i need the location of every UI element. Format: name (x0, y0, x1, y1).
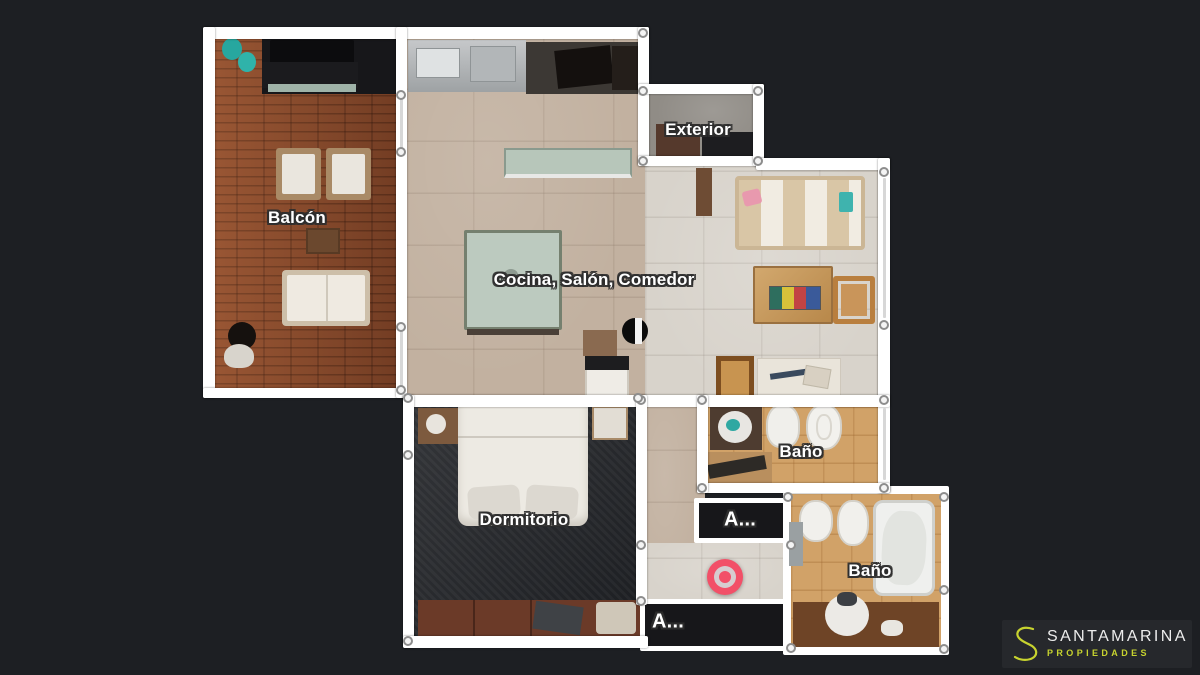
ceiling-lamp (622, 318, 648, 344)
bathroom2-toilet (799, 500, 833, 542)
room-label-dormitorio[interactable]: Dormitorio (480, 510, 569, 530)
wall-node (396, 147, 406, 157)
wall-bathroom1-left (697, 395, 708, 493)
wall-node (403, 636, 413, 646)
glass-door-line (400, 330, 403, 388)
room-label-bano-1[interactable]: Baño (779, 442, 822, 462)
wall-exterior-right (753, 84, 764, 166)
wall-bedroom-right (636, 395, 647, 605)
wall-node (396, 90, 406, 100)
bathroom2-bidet (837, 500, 869, 546)
teal-pillow (839, 192, 853, 212)
wall-node (753, 156, 763, 166)
wall-node (403, 450, 413, 460)
bathroom1-vanity (710, 406, 762, 450)
wall-balcony-bottom (203, 388, 405, 398)
kitchen-counter (408, 40, 526, 92)
wall-node (638, 156, 648, 166)
nightstand-right (592, 406, 628, 440)
glass-door-line (400, 92, 403, 150)
nightstand-left (418, 408, 458, 444)
bed (458, 398, 588, 526)
window-line (883, 408, 886, 480)
room-label-exterior[interactable]: Exterior (665, 120, 731, 140)
balcony-sofa (282, 270, 370, 326)
wall-node (636, 540, 646, 550)
magazines (769, 286, 821, 310)
coffee-table (753, 266, 833, 324)
wall-bathroom1-bottom (697, 483, 890, 493)
bedroom-dresser (418, 600, 640, 638)
wall-node (396, 322, 406, 332)
agency-logo: SANTAMARINA PROPIEDADES (1002, 620, 1192, 668)
wall-node (939, 585, 949, 595)
room-label-cocina[interactable]: Cocina, Salón, Comedor (494, 270, 695, 290)
wall-balcony-left (203, 27, 215, 398)
bathtub (873, 500, 935, 596)
folded-linen (596, 602, 636, 634)
wall-node (753, 86, 763, 96)
wall-node (783, 492, 793, 502)
dining-chair (833, 276, 875, 324)
wall-node (786, 643, 796, 653)
wall-node (403, 393, 413, 403)
kitchen-appliances (526, 42, 642, 94)
current-position-marker[interactable] (707, 559, 743, 595)
logo-name: SANTAMARINA (1047, 629, 1188, 646)
room-label-armario-2[interactable]: A... (652, 611, 684, 634)
wall-bedroom-bottom (403, 636, 648, 648)
balcony-side-table (306, 228, 340, 254)
marker-dot (719, 571, 731, 583)
plant-pot-teal-2 (238, 52, 256, 72)
logo-tagline: PROPIEDADES (1047, 649, 1188, 658)
window-line (883, 178, 886, 318)
console-table (585, 356, 629, 398)
salon-sofa (735, 176, 865, 250)
wall-salon-top (756, 158, 890, 170)
salon-cabinet (696, 168, 712, 216)
pink-pillow (741, 188, 762, 207)
room-label-armario-1[interactable]: A... (724, 509, 756, 532)
wall-node (633, 393, 643, 403)
wall-bedroom-left (403, 395, 414, 648)
wall-node (638, 86, 648, 96)
wall-node (638, 28, 648, 38)
wall-kitchen-right (638, 27, 649, 166)
wall-node (636, 596, 646, 606)
logo-s-icon (1012, 625, 1038, 663)
wood-chest (583, 330, 617, 356)
wall-node (786, 540, 796, 550)
wall-top (203, 27, 649, 39)
wall-node (879, 483, 889, 493)
wall-node (879, 395, 889, 405)
wall-exterior-bottom (638, 156, 764, 166)
dark-bag (532, 601, 583, 635)
room-label-balcon[interactable]: Balcón (268, 208, 326, 228)
armchair-2 (326, 148, 371, 200)
wall-node (879, 320, 889, 330)
floorplan-viewer: Balcón Cocina, Salón, Comedor Exterior B… (0, 0, 1200, 675)
wall-node (879, 167, 889, 177)
armchair-1 (276, 148, 321, 200)
balcony-white-chair (224, 344, 254, 368)
wooden-box (716, 356, 754, 400)
wall-exterior-top (638, 84, 764, 94)
desk (757, 358, 841, 400)
balcony-glass-table (268, 84, 356, 92)
kitchen-sideboard (504, 148, 632, 178)
wall-node (697, 483, 707, 493)
wall-node (939, 492, 949, 502)
wall-node (939, 644, 949, 654)
room-label-bano-2[interactable]: Baño (848, 561, 891, 581)
wall-node (697, 395, 707, 405)
bathroom2-counter (793, 602, 939, 647)
